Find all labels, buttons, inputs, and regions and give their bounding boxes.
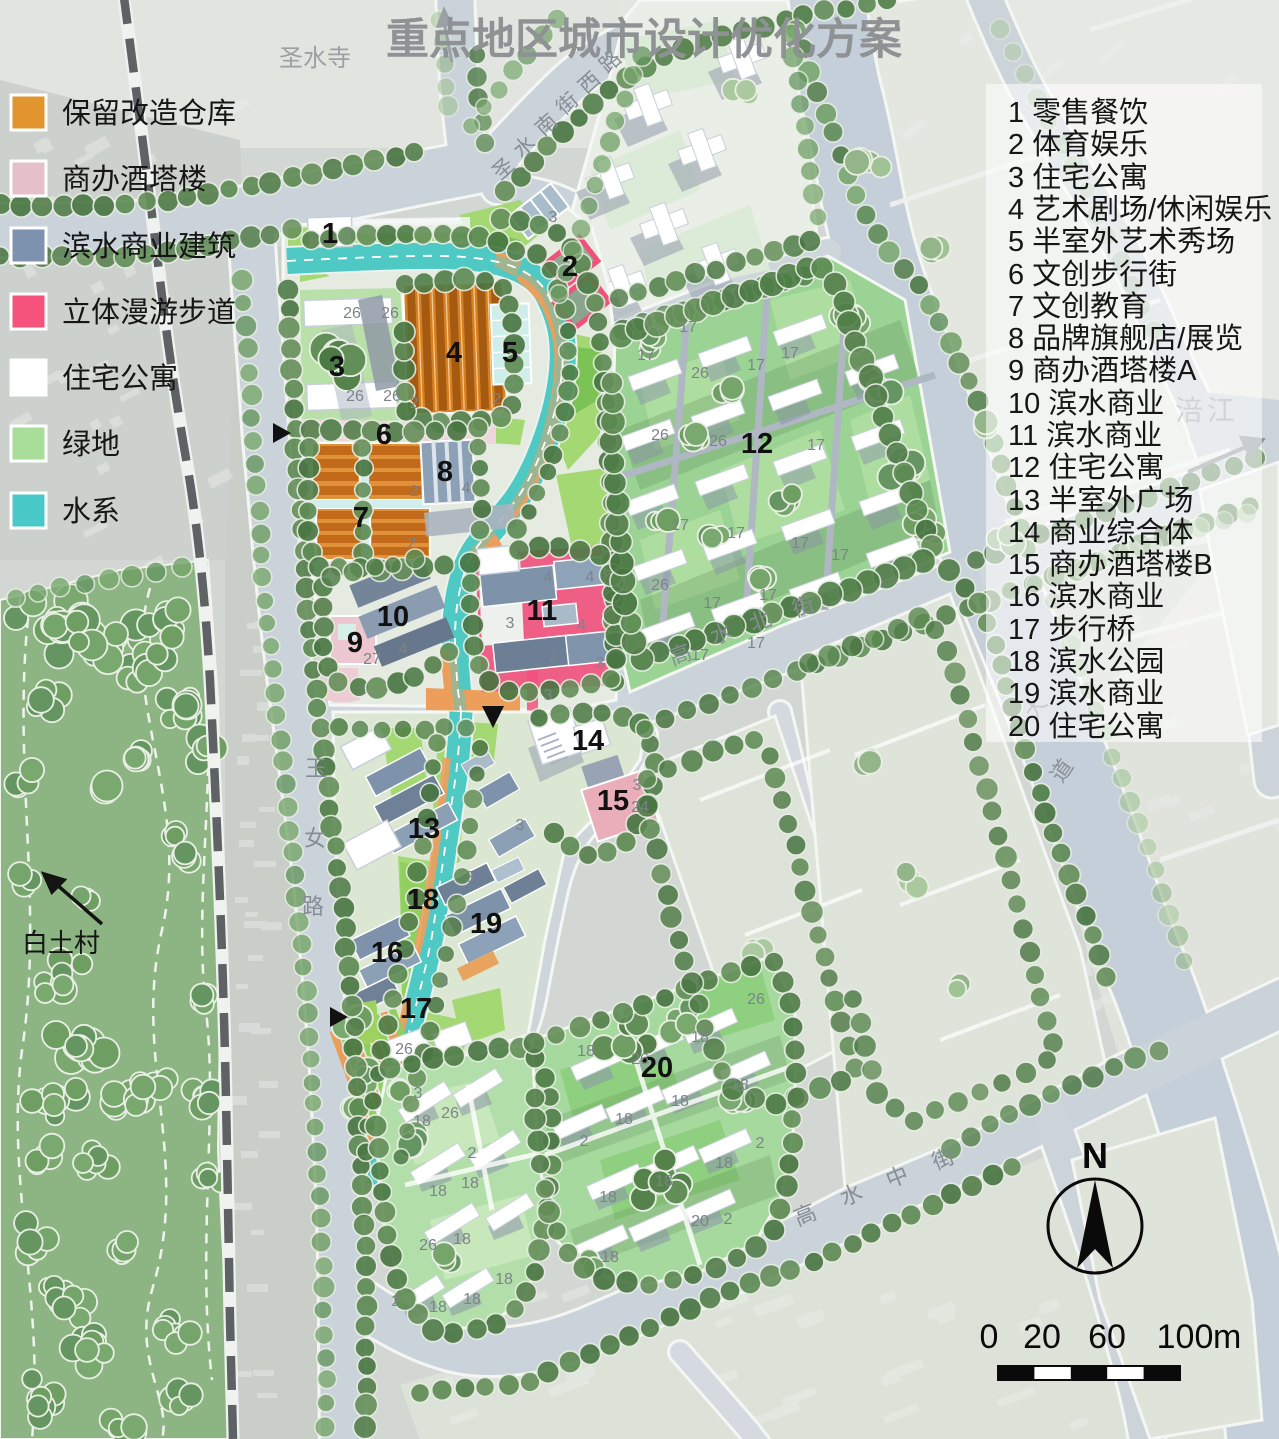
svg-text:27: 27 <box>363 651 381 668</box>
svg-text:3 住宅公寓: 3 住宅公寓 <box>1008 161 1148 194</box>
svg-text:12: 12 <box>741 428 773 460</box>
svg-text:4: 4 <box>544 569 553 586</box>
svg-text:18: 18 <box>671 1093 689 1110</box>
svg-text:18: 18 <box>429 1299 447 1316</box>
svg-text:18: 18 <box>413 1113 431 1130</box>
svg-text:17 步行桥: 17 步行桥 <box>1008 613 1135 646</box>
svg-text:26: 26 <box>419 1237 437 1254</box>
svg-text:3: 3 <box>549 209 558 226</box>
svg-text:18: 18 <box>453 1231 471 1248</box>
svg-text:18: 18 <box>731 1077 749 1094</box>
svg-text:3: 3 <box>440 973 449 990</box>
svg-text:20 住宅公寓: 20 住宅公寓 <box>1008 710 1164 743</box>
svg-text:2: 2 <box>580 1133 589 1150</box>
svg-text:18: 18 <box>463 1291 481 1308</box>
svg-text:5: 5 <box>502 337 518 369</box>
svg-text:3: 3 <box>549 649 558 666</box>
svg-text:100: 100 <box>1157 1318 1214 1356</box>
svg-text:保留改造仓库: 保留改造仓库 <box>62 97 236 130</box>
svg-text:20: 20 <box>1023 1318 1061 1356</box>
svg-text:7 文创教育: 7 文创教育 <box>1008 290 1148 323</box>
svg-text:住宅公寓: 住宅公寓 <box>62 362 178 395</box>
svg-text:3: 3 <box>544 687 553 704</box>
svg-text:26: 26 <box>651 577 669 594</box>
svg-text:4: 4 <box>399 641 408 658</box>
svg-text:3: 3 <box>414 1085 423 1102</box>
svg-text:3: 3 <box>506 615 515 632</box>
svg-text:10: 10 <box>377 601 409 633</box>
svg-text:9 商办酒塔楼A: 9 商办酒塔楼A <box>1008 354 1197 387</box>
svg-text:2: 2 <box>756 1135 765 1152</box>
svg-text:17: 17 <box>703 595 721 612</box>
svg-text:6 文创步行街: 6 文创步行街 <box>1008 258 1177 291</box>
svg-text:15 商办酒塔楼B: 15 商办酒塔楼B <box>1008 548 1213 581</box>
svg-text:N: N <box>1082 1135 1108 1176</box>
svg-text:10 滨水商业: 10 滨水商业 <box>1008 387 1164 420</box>
svg-text:4 艺术剧场/休闲娱乐: 4 艺术剧场/休闲娱乐 <box>1008 193 1272 226</box>
svg-text:玉: 玉 <box>305 756 327 781</box>
svg-text:18: 18 <box>577 1043 595 1060</box>
svg-text:26: 26 <box>343 305 361 322</box>
svg-text:15: 15 <box>597 785 629 817</box>
svg-text:26: 26 <box>747 991 765 1008</box>
svg-text:2: 2 <box>724 1211 733 1228</box>
svg-text:17: 17 <box>759 587 777 604</box>
svg-text:13 半室外广场: 13 半室外广场 <box>1008 484 1193 517</box>
svg-text:17: 17 <box>781 345 799 362</box>
svg-text:17: 17 <box>400 993 432 1025</box>
svg-text:4: 4 <box>586 569 595 586</box>
svg-text:26: 26 <box>631 1051 649 1068</box>
svg-text:11 滨水商业: 11 滨水商业 <box>1008 419 1162 452</box>
svg-text:18: 18 <box>495 1271 513 1288</box>
svg-text:1: 1 <box>322 218 338 250</box>
svg-text:17: 17 <box>671 517 689 534</box>
svg-text:18: 18 <box>601 1249 619 1266</box>
svg-text:水系: 水系 <box>62 495 120 528</box>
svg-text:8: 8 <box>437 456 453 488</box>
svg-text:12 住宅公寓: 12 住宅公寓 <box>1008 451 1164 484</box>
svg-text:26: 26 <box>383 388 401 405</box>
svg-text:19: 19 <box>470 908 502 940</box>
svg-text:女: 女 <box>304 826 326 851</box>
svg-text:5 半室外艺术秀场: 5 半室外艺术秀场 <box>1008 225 1235 258</box>
svg-text:18: 18 <box>407 884 439 916</box>
svg-text:4: 4 <box>446 337 462 369</box>
svg-text:17: 17 <box>727 525 745 542</box>
svg-text:m: m <box>1213 1318 1241 1356</box>
svg-text:16: 16 <box>371 937 403 969</box>
svg-text:18: 18 <box>655 1173 673 1190</box>
svg-text:滨水商业建筑: 滨水商业建筑 <box>62 230 236 263</box>
svg-text:3: 3 <box>633 777 642 794</box>
svg-text:2: 2 <box>408 535 417 552</box>
svg-text:3: 3 <box>596 655 605 672</box>
svg-text:18: 18 <box>429 1183 447 1200</box>
svg-text:路: 路 <box>302 894 324 919</box>
svg-text:商办酒塔楼: 商办酒塔楼 <box>62 163 207 196</box>
svg-text:26: 26 <box>651 427 669 444</box>
svg-text:20: 20 <box>691 1213 709 1230</box>
svg-text:0: 0 <box>980 1318 999 1356</box>
svg-text:6: 6 <box>376 419 392 451</box>
svg-text:26: 26 <box>395 1041 413 1058</box>
svg-text:26: 26 <box>691 365 709 382</box>
svg-text:18: 18 <box>615 1111 633 1128</box>
svg-text:26: 26 <box>381 305 399 322</box>
svg-text:18: 18 <box>715 1155 733 1172</box>
svg-text:60: 60 <box>1088 1318 1126 1356</box>
svg-text:18: 18 <box>691 1029 709 1046</box>
svg-text:重点地区城市设计优化方案: 重点地区城市设计优化方案 <box>386 16 903 64</box>
svg-text:18: 18 <box>461 1175 479 1192</box>
svg-text:2: 2 <box>493 391 502 408</box>
svg-text:18 滨水公园: 18 滨水公园 <box>1008 645 1164 678</box>
svg-text:17: 17 <box>747 357 765 374</box>
svg-text:26: 26 <box>441 1105 459 1122</box>
svg-text:19 滨水商业: 19 滨水商业 <box>1008 677 1164 710</box>
svg-text:3: 3 <box>516 817 525 834</box>
svg-text:3: 3 <box>466 869 475 886</box>
svg-text:17: 17 <box>831 547 849 564</box>
svg-text:2 体育娱乐: 2 体育娱乐 <box>1008 128 1148 161</box>
svg-text:2: 2 <box>392 1293 401 1310</box>
svg-text:圣水寺: 圣水寺 <box>279 45 351 72</box>
svg-text:18: 18 <box>599 1189 617 1206</box>
svg-text:3: 3 <box>329 351 345 383</box>
svg-text:17: 17 <box>807 437 825 454</box>
svg-text:2: 2 <box>562 251 578 283</box>
svg-text:24: 24 <box>631 799 649 816</box>
svg-text:17: 17 <box>747 635 765 652</box>
svg-text:26: 26 <box>346 388 364 405</box>
svg-text:17: 17 <box>791 535 809 552</box>
svg-text:4: 4 <box>578 617 587 634</box>
svg-text:17: 17 <box>679 319 697 336</box>
svg-text:7: 7 <box>353 502 369 534</box>
svg-text:绿地: 绿地 <box>62 428 120 461</box>
svg-text:11: 11 <box>527 595 558 627</box>
svg-text:2: 2 <box>410 395 419 412</box>
svg-text:14: 14 <box>572 725 604 757</box>
svg-text:16 滨水商业: 16 滨水商业 <box>1008 580 1164 613</box>
svg-text:14 商业综合体: 14 商业综合体 <box>1008 516 1193 549</box>
svg-text:白土村: 白土村 <box>22 928 100 958</box>
svg-text:2: 2 <box>468 1145 477 1162</box>
svg-text:13: 13 <box>408 813 440 845</box>
svg-text:2: 2 <box>344 225 353 242</box>
svg-text:4: 4 <box>462 480 471 497</box>
svg-text:1 零售餐饮: 1 零售餐饮 <box>1008 96 1148 129</box>
svg-text:立体漫游步道: 立体漫游步道 <box>62 296 236 329</box>
svg-text:8 品牌旗舰店/展览: 8 品牌旗舰店/展览 <box>1008 322 1243 355</box>
svg-text:26: 26 <box>709 433 727 450</box>
svg-text:9: 9 <box>347 627 363 659</box>
svg-text:2: 2 <box>410 483 419 500</box>
svg-text:17: 17 <box>637 347 655 364</box>
